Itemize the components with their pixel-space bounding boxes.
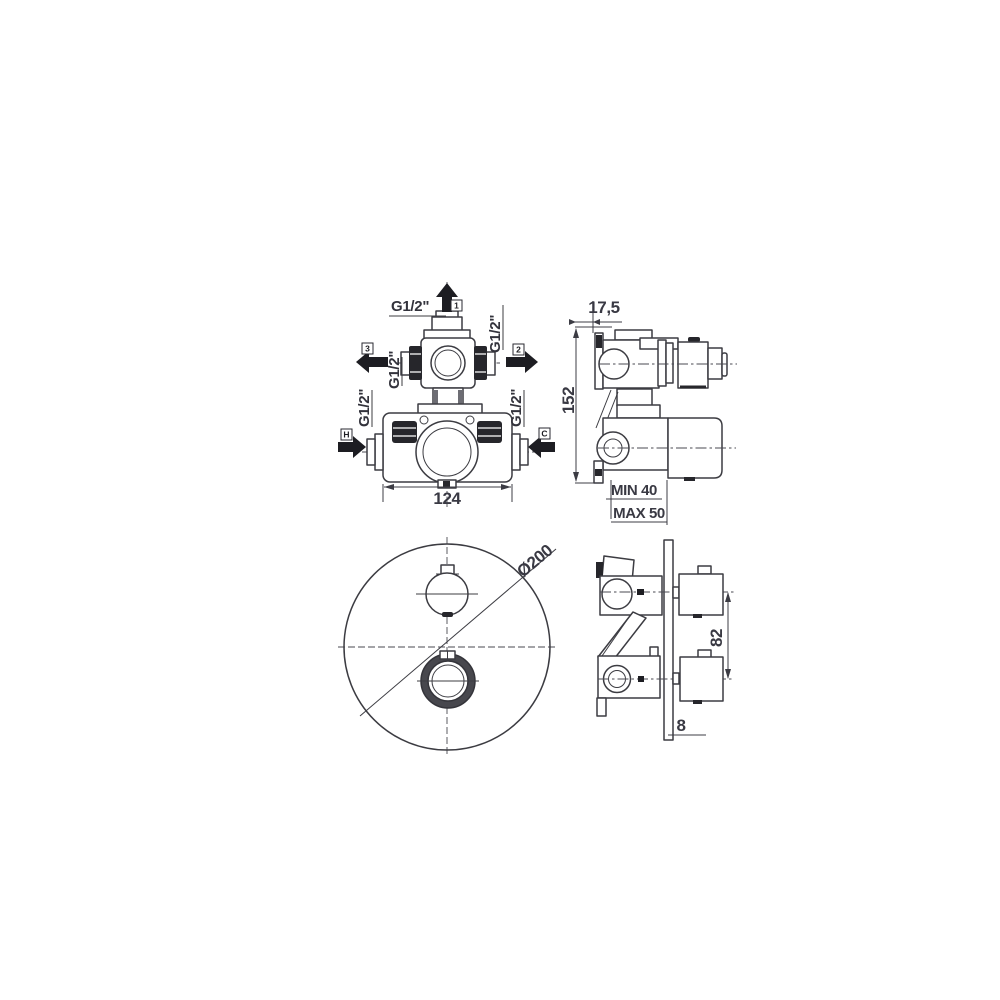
diverter-cartridge: [678, 342, 708, 388]
left-nut-section: [409, 346, 422, 380]
port-3-arrow: 3: [356, 343, 388, 373]
cartridge-bore-outer: [416, 421, 478, 483]
dim-plate-text: 8: [676, 716, 685, 735]
dim-offset-17-5: 17,5: [569, 298, 622, 333]
drawing-sheet: 1 3 2 H C G1/2" G1/2" G1/2" G1/2": [0, 0, 1000, 1000]
port-2-stub: [486, 352, 495, 375]
technical-drawing: 1 3 2 H C G1/2" G1/2" G1/2" G1/2": [0, 0, 1000, 1000]
diverter-handle: [416, 565, 478, 617]
side-lower-assembly: [594, 405, 736, 483]
cold-inlet-arrow: C: [528, 428, 555, 458]
dim-width-text: 124: [433, 489, 461, 508]
dim-offset-text: 17,5: [588, 298, 620, 317]
right-nut-section: [474, 346, 487, 380]
diverter-body: [401, 311, 495, 406]
port-1-arrow: 1: [436, 283, 462, 312]
port-1-tag: 1: [454, 301, 459, 311]
front-rough-in-view: 1 3 2 H C G1/2" G1/2" G1/2" G1/2": [338, 282, 555, 508]
cold-port-stub: [512, 434, 520, 470]
trim-plate-view: Ø200: [338, 537, 558, 757]
thread-label-hot: G1/2": [356, 389, 373, 427]
dim-diameter-text: Ø200: [513, 541, 556, 581]
hot-inlet-arrow: H: [338, 429, 366, 458]
installed-upper-handle: [679, 566, 723, 618]
hot-nut-section: [392, 421, 417, 443]
thread-label-cold: G1/2": [508, 389, 525, 427]
port-2-tag: 2: [516, 345, 521, 355]
side-upper-assembly: [595, 330, 737, 389]
port-2-arrow: 2: [506, 344, 538, 373]
side-depth-view: 152 17,5 MIN 40 MAX 50: [559, 298, 737, 525]
port-3-tag: 3: [365, 344, 370, 354]
thread-label-right: G1/2": [487, 315, 504, 353]
installed-rear-body: [596, 556, 662, 716]
thermostat-body: [367, 404, 528, 488]
cold-nut-section: [477, 421, 502, 443]
dim-max-depth-text: MAX 50: [613, 505, 665, 522]
dim-centers-text: 82: [707, 629, 726, 647]
hot-tag: H: [343, 430, 349, 440]
installed-lower-handle: [680, 650, 723, 704]
cold-tag: C: [541, 429, 547, 439]
installed-upper-port: [602, 579, 632, 609]
thread-label-left: G1/2": [386, 351, 403, 389]
dim-height-text: 152: [559, 387, 578, 414]
dim-depth-range: MIN 40 MAX 50: [606, 480, 667, 525]
wall-plate: [664, 540, 673, 740]
hot-port-stub: [375, 434, 383, 470]
diverter-bore-outer: [431, 346, 465, 380]
thread-label-top: G1/2": [391, 298, 429, 315]
dim-min-depth-text: MIN 40: [611, 482, 657, 499]
installed-side-view: 82 8: [596, 540, 734, 740]
